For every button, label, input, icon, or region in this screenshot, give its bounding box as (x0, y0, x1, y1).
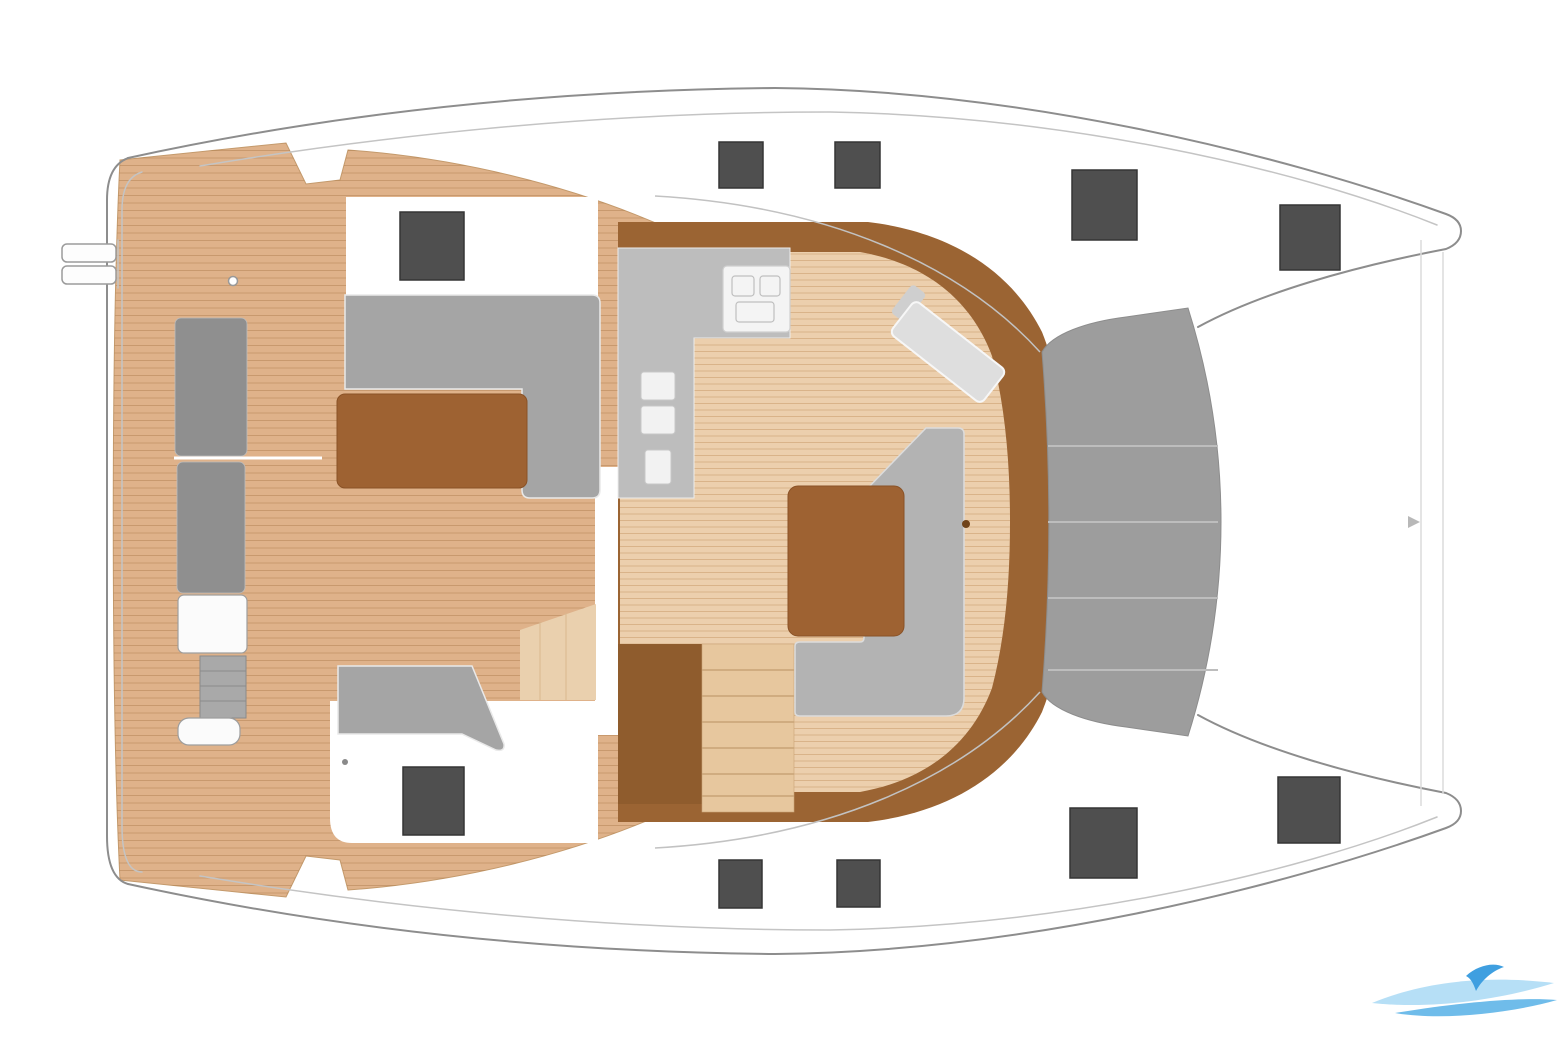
transom-bench-upper (175, 318, 247, 456)
galley-drainer (645, 450, 671, 484)
bow-fitting (1408, 516, 1420, 528)
transom-platform-pad (178, 718, 240, 745)
deck-hatch-foredeck-stbd (1070, 808, 1137, 878)
transom-bench-lower (177, 462, 245, 593)
transom-steps (200, 656, 246, 718)
galley-cabinet (618, 644, 702, 804)
deck-hatch-sidedeck-stbd-2 (837, 860, 880, 907)
swim-ladder (62, 240, 118, 288)
swim-ladder-rung-1 (62, 244, 116, 262)
saloon-table (788, 486, 904, 636)
deck-hatch-sidedeck-port-2 (835, 142, 880, 188)
deck-hatch-sidedeck-stbd-1 (719, 860, 762, 908)
sink-basin-2 (641, 406, 675, 434)
sink-basin-1 (641, 372, 675, 400)
deck-hatch-foredeck-port (1072, 170, 1137, 240)
coachroof-port (346, 197, 598, 303)
cockpit-table (337, 394, 527, 488)
saloon-door-knob (962, 520, 970, 528)
stairs-body (702, 644, 794, 812)
deck-hatch-bow-port (1280, 205, 1340, 270)
companionway-stairs (702, 644, 794, 812)
deck-plan-page (0, 0, 1560, 1039)
catamaran-deck-plan (0, 0, 1560, 1039)
deck-hatch-aft-coachroof-stbd (403, 767, 464, 835)
swim-ladder-rung-2 (62, 266, 116, 284)
deck-hatch-aft-coachroof-port (400, 212, 464, 280)
transom-locker (178, 595, 247, 653)
saloon (618, 222, 1070, 822)
door-hinge-dot (342, 759, 348, 765)
deck-hatch-bow-stbd (1278, 777, 1340, 843)
watermark-logo (1372, 965, 1557, 1017)
deck-hatch-sidedeck-port-1 (719, 142, 763, 188)
deck-filler-cap (229, 277, 238, 286)
sliding-door-passage (595, 467, 618, 735)
